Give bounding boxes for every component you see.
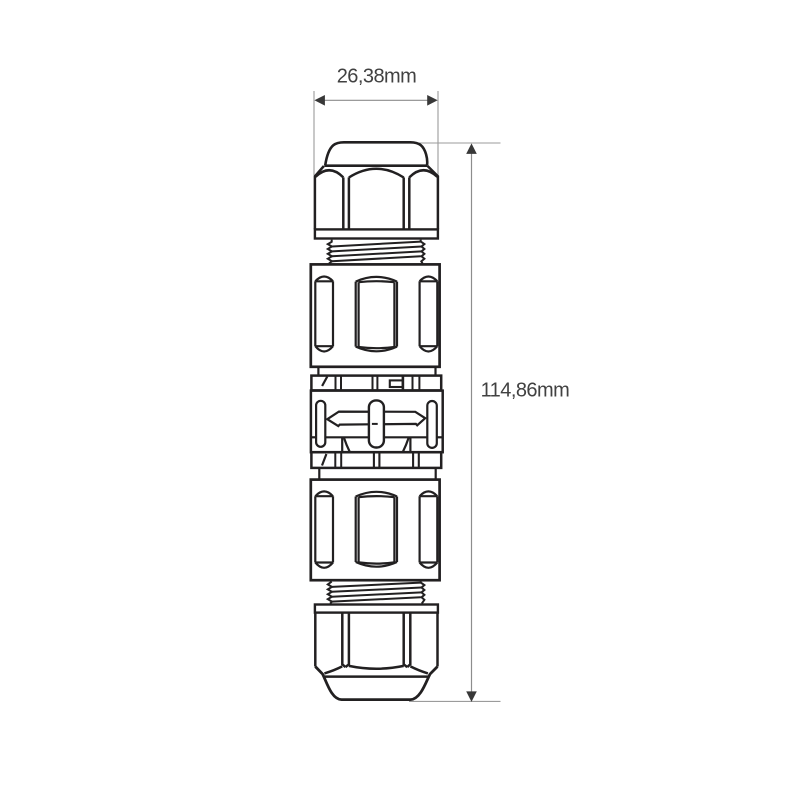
svg-text:26,38mm: 26,38mm (337, 65, 417, 87)
svg-text:114,86mm: 114,86mm (481, 380, 570, 402)
